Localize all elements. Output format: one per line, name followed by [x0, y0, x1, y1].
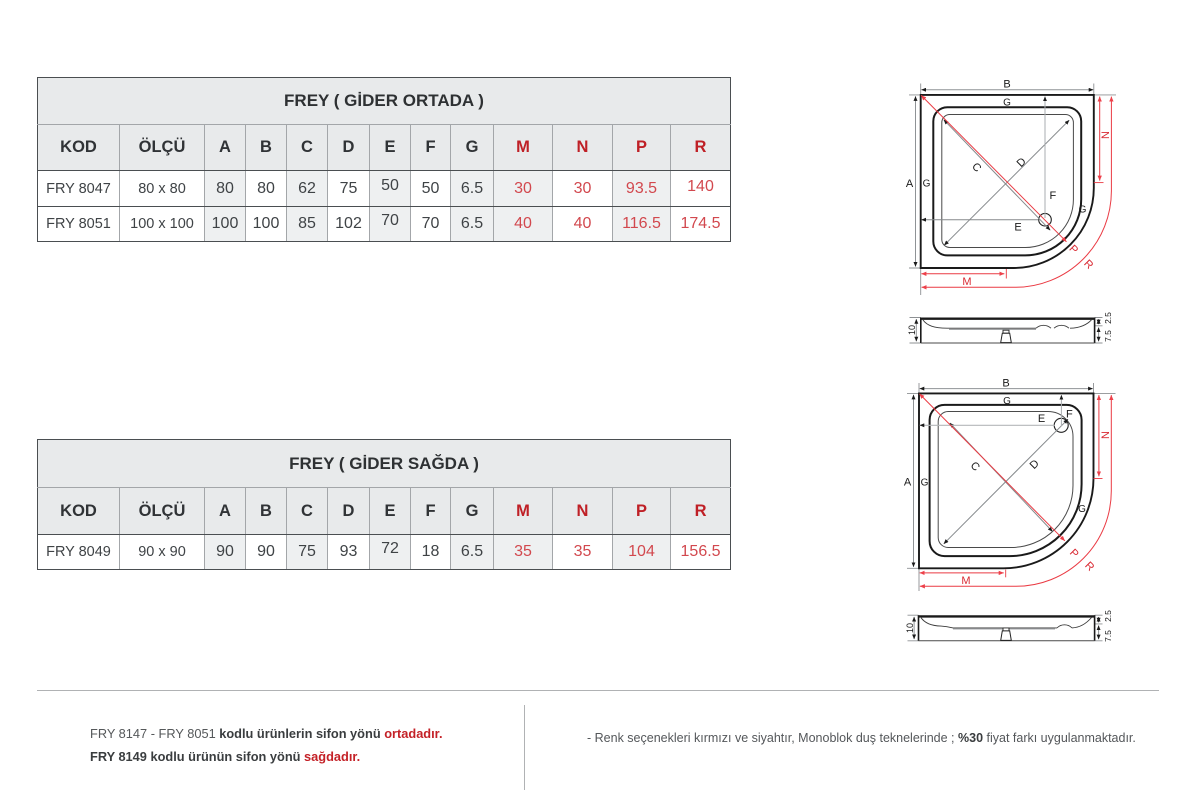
svg-text:A: A	[906, 178, 914, 190]
svg-text:7.5: 7.5	[1103, 630, 1113, 642]
svg-text:2.5: 2.5	[1103, 610, 1113, 622]
svg-text:G: G	[1079, 205, 1087, 216]
svg-text:P: P	[1067, 547, 1081, 561]
svg-text:10: 10	[907, 325, 917, 335]
svg-text:E: E	[1014, 222, 1021, 234]
svg-text:G: G	[1003, 396, 1011, 407]
svg-text:N: N	[1100, 431, 1112, 439]
svg-text:7.5: 7.5	[1103, 330, 1113, 342]
svg-text:G: G	[1078, 504, 1086, 515]
svg-text:M: M	[962, 276, 971, 288]
svg-text:E: E	[1038, 413, 1045, 425]
svg-text:2.5: 2.5	[1103, 312, 1113, 324]
svg-text:B: B	[1002, 378, 1009, 390]
svg-text:G: G	[921, 478, 929, 489]
svg-text:B: B	[1003, 79, 1010, 91]
svg-text:N: N	[1100, 131, 1112, 139]
svg-text:F: F	[1066, 409, 1073, 421]
svg-text:R: R	[1082, 560, 1096, 574]
svg-text:R: R	[1081, 258, 1095, 272]
svg-text:A: A	[904, 477, 912, 489]
svg-text:10: 10	[905, 623, 915, 633]
svg-text:F: F	[1050, 190, 1057, 202]
svg-text:G: G	[923, 179, 931, 190]
svg-text:M: M	[961, 575, 970, 587]
svg-text:G: G	[1003, 98, 1011, 109]
